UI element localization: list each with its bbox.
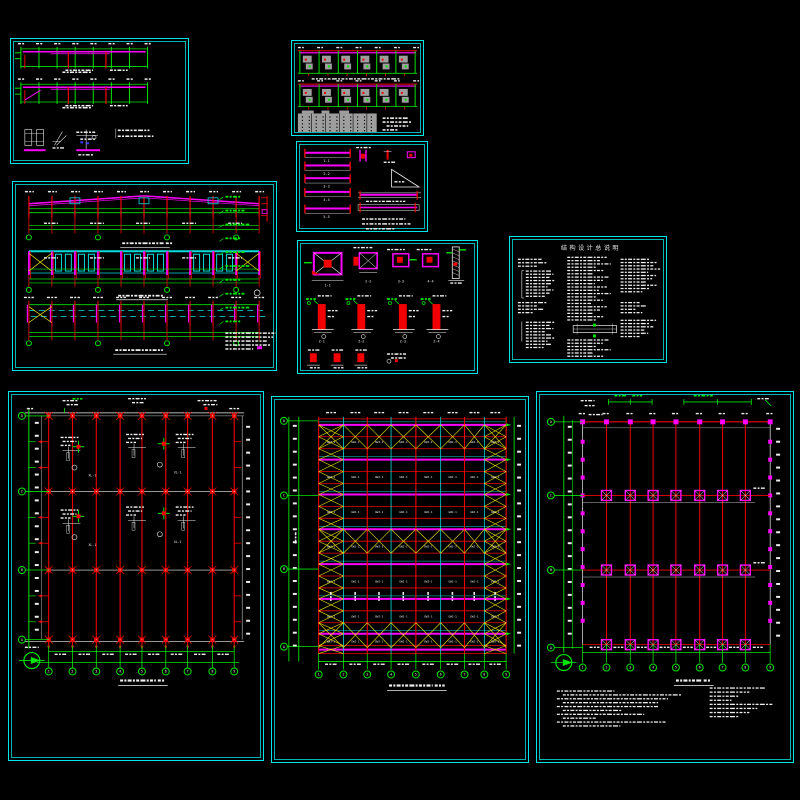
svg-text:GWJ-1: GWJ-1 bbox=[491, 440, 500, 444]
svg-text:1-1: 1-1 bbox=[323, 159, 329, 163]
svg-text:GWJ-1: GWJ-1 bbox=[470, 475, 479, 479]
svg-text:D: D bbox=[283, 419, 285, 423]
svg-text:GWJ-1: GWJ-1 bbox=[375, 614, 384, 618]
svg-text:3: 3 bbox=[629, 666, 631, 670]
svg-text:6: 6 bbox=[165, 670, 167, 674]
svg-text:GWJ-1: GWJ-1 bbox=[399, 614, 408, 618]
svg-text:4: 4 bbox=[119, 670, 121, 674]
foundation-plan-sheet[interactable]: DCBA123456789 bbox=[536, 391, 794, 763]
svg-text:D: D bbox=[550, 420, 552, 424]
svg-text:GWJ-1: GWJ-1 bbox=[448, 440, 457, 444]
column-detail-sheet[interactable]: 1-12-23-34-4Z-1Z-2Z-3Z-4 bbox=[297, 240, 478, 374]
svg-text:GWJ-1: GWJ-1 bbox=[448, 475, 457, 479]
svg-text:A: A bbox=[21, 638, 23, 642]
svg-text:GWJ-1: GWJ-1 bbox=[399, 579, 408, 583]
svg-text:2-2: 2-2 bbox=[365, 279, 371, 283]
svg-text:3-3: 3-3 bbox=[398, 279, 404, 283]
cad-drawing-canvas: 1-12-23-34-45-5 1-12-23-34-4Z-1Z-2Z-3Z-4… bbox=[0, 0, 800, 800]
svg-text:GWJ-1: GWJ-1 bbox=[491, 614, 500, 618]
svg-text:GWJ-1: GWJ-1 bbox=[375, 545, 384, 549]
svg-text:3: 3 bbox=[366, 673, 368, 677]
svg-text:GWJ-1: GWJ-1 bbox=[351, 579, 360, 583]
svg-text:GWJ-1: GWJ-1 bbox=[470, 440, 479, 444]
svg-text:B: B bbox=[550, 568, 552, 572]
svg-text:C: C bbox=[21, 490, 23, 494]
svg-text:GWJ-1: GWJ-1 bbox=[327, 614, 336, 618]
svg-text:GWJ-1: GWJ-1 bbox=[470, 640, 479, 644]
svg-text:GWJ-1: GWJ-1 bbox=[448, 579, 457, 583]
svg-text:6: 6 bbox=[699, 666, 701, 670]
svg-text:Z-3: Z-3 bbox=[400, 339, 406, 343]
svg-text:7: 7 bbox=[464, 673, 466, 677]
svg-text:GWJ-1: GWJ-1 bbox=[375, 510, 384, 514]
svg-text:9: 9 bbox=[769, 666, 771, 670]
svg-text:9: 9 bbox=[233, 670, 235, 674]
general-notes-sheet[interactable]: 结构设计总说明 bbox=[509, 236, 667, 363]
svg-text:3-3: 3-3 bbox=[323, 184, 329, 188]
svg-text:A: A bbox=[283, 645, 285, 649]
truss-elevation-sheet-drawing bbox=[13, 182, 276, 370]
svg-text:7: 7 bbox=[722, 666, 724, 670]
svg-text:GWJ-1: GWJ-1 bbox=[351, 640, 360, 644]
svg-text:GWJ-1: GWJ-1 bbox=[375, 640, 384, 644]
svg-text:GWJ-1: GWJ-1 bbox=[424, 579, 433, 583]
svg-text:GWJ-1: GWJ-1 bbox=[424, 545, 433, 549]
svg-text:2-2: 2-2 bbox=[323, 172, 329, 176]
svg-text:GWJ-1: GWJ-1 bbox=[351, 510, 360, 514]
svg-text:XL-1: XL-1 bbox=[89, 474, 97, 478]
svg-text:GWJ-1: GWJ-1 bbox=[470, 510, 479, 514]
svg-text:GWJ-1: GWJ-1 bbox=[327, 440, 336, 444]
svg-text:GWJ-1: GWJ-1 bbox=[327, 640, 336, 644]
svg-text:XL-1: XL-1 bbox=[174, 471, 182, 475]
svg-text:7: 7 bbox=[187, 670, 189, 674]
svg-text:GWJ-1: GWJ-1 bbox=[448, 640, 457, 644]
svg-text:GWJ-1: GWJ-1 bbox=[351, 475, 360, 479]
svg-text:C: C bbox=[283, 494, 285, 498]
svg-text:Z-1: Z-1 bbox=[319, 339, 325, 343]
svg-text:Z-2: Z-2 bbox=[358, 339, 364, 343]
svg-text:GWJ-1: GWJ-1 bbox=[351, 614, 360, 618]
svg-text:XL-1: XL-1 bbox=[89, 543, 97, 547]
svg-text:B: B bbox=[21, 568, 23, 572]
girt-elevation-sheet[interactable] bbox=[10, 38, 189, 164]
svg-text:GWJ-1: GWJ-1 bbox=[399, 440, 408, 444]
svg-text:5-5: 5-5 bbox=[323, 215, 329, 219]
svg-text:8: 8 bbox=[483, 673, 485, 677]
svg-text:GWJ-1: GWJ-1 bbox=[424, 440, 433, 444]
svg-text:GWJ-1: GWJ-1 bbox=[327, 510, 336, 514]
truss-elevation-sheet[interactable] bbox=[12, 181, 277, 371]
svg-text:1: 1 bbox=[318, 673, 320, 677]
svg-text:A: A bbox=[550, 646, 552, 650]
svg-text:4: 4 bbox=[390, 673, 392, 677]
svg-text:GWJ-1: GWJ-1 bbox=[327, 579, 336, 583]
svg-text:4-4: 4-4 bbox=[323, 198, 329, 202]
svg-text:GWJ-1: GWJ-1 bbox=[491, 545, 500, 549]
svg-text:2: 2 bbox=[342, 673, 344, 677]
svg-text:C: C bbox=[550, 494, 552, 498]
svg-text:GWJ-1: GWJ-1 bbox=[491, 640, 500, 644]
svg-text:4: 4 bbox=[652, 666, 654, 670]
roof-bracing-plan-sheet-drawing: GWJ-1GWJ-1GWJ-1GWJ-1GWJ-1GWJ-1GWJ-1GWJ-1… bbox=[272, 397, 528, 762]
svg-text:GWJ-1: GWJ-1 bbox=[399, 475, 408, 479]
svg-text:GWJ-1: GWJ-1 bbox=[399, 640, 408, 644]
svg-text:GWJ-1: GWJ-1 bbox=[424, 475, 433, 479]
svg-text:5: 5 bbox=[415, 673, 417, 677]
svg-text:1: 1 bbox=[582, 666, 584, 670]
roof-bracing-plan-sheet[interactable]: GWJ-1GWJ-1GWJ-1GWJ-1GWJ-1GWJ-1GWJ-1GWJ-1… bbox=[271, 396, 529, 763]
svg-text:GWJ-1: GWJ-1 bbox=[375, 579, 384, 583]
column-layout-plan-sheet[interactable]: DCBAXL-1XL-1XL-1XL-1123456789 bbox=[8, 391, 264, 761]
svg-text:GWJ-1: GWJ-1 bbox=[470, 579, 479, 583]
svg-text:GWJ-1: GWJ-1 bbox=[491, 579, 500, 583]
column-detail-sheet-drawing: 1-12-23-34-4Z-1Z-2Z-3Z-4 bbox=[298, 241, 477, 373]
svg-text:GWJ-1: GWJ-1 bbox=[327, 545, 336, 549]
svg-text:GWJ-1: GWJ-1 bbox=[448, 614, 457, 618]
svg-text:GWJ-1: GWJ-1 bbox=[399, 545, 408, 549]
svg-text:8: 8 bbox=[744, 666, 746, 670]
svg-text:9: 9 bbox=[505, 673, 507, 677]
svg-text:2: 2 bbox=[72, 670, 74, 674]
svg-text:4-4: 4-4 bbox=[427, 279, 433, 283]
svg-text:1: 1 bbox=[48, 670, 50, 674]
svg-text:5: 5 bbox=[675, 666, 677, 670]
svg-text:GWJ-1: GWJ-1 bbox=[351, 545, 360, 549]
general-notes-sheet-drawing: 结构设计总说明 bbox=[510, 237, 666, 362]
svg-text:GWJ-1: GWJ-1 bbox=[448, 545, 457, 549]
svg-text:GWJ-1: GWJ-1 bbox=[470, 545, 479, 549]
svg-text:6: 6 bbox=[440, 673, 442, 677]
beam-detail-sheet[interactable]: 1-12-23-34-45-5 bbox=[296, 141, 428, 232]
svg-text:XL-1: XL-1 bbox=[174, 540, 182, 544]
svg-text:2: 2 bbox=[606, 666, 608, 670]
svg-text:D: D bbox=[21, 414, 23, 418]
svg-text:8: 8 bbox=[211, 670, 213, 674]
north-arrow-icon bbox=[19, 653, 45, 669]
foundation-plan-sheet-drawing: DCBA123456789 bbox=[537, 392, 793, 762]
column-layout-plan-sheet-drawing: DCBAXL-1XL-1XL-1XL-1123456789 bbox=[9, 392, 263, 760]
svg-text:GWJ-1: GWJ-1 bbox=[470, 614, 479, 618]
svg-text:GWJ-1: GWJ-1 bbox=[424, 640, 433, 644]
svg-text:结构设计总说明: 结构设计总说明 bbox=[561, 244, 621, 252]
svg-text:1-1: 1-1 bbox=[325, 283, 331, 287]
svg-text:GWJ-1: GWJ-1 bbox=[375, 475, 384, 479]
girt-elevation-sheet-drawing bbox=[11, 39, 188, 163]
svg-text:GWJ-1: GWJ-1 bbox=[448, 510, 457, 514]
svg-text:GWJ-1: GWJ-1 bbox=[351, 440, 360, 444]
svg-text:GWJ-1: GWJ-1 bbox=[375, 440, 384, 444]
svg-text:GWJ-1: GWJ-1 bbox=[491, 510, 500, 514]
frame-elevation-sheet-drawing bbox=[292, 41, 423, 135]
north-arrow-icon bbox=[551, 655, 577, 671]
svg-text:GWJ-1: GWJ-1 bbox=[424, 510, 433, 514]
svg-text:GWJ-1: GWJ-1 bbox=[491, 475, 500, 479]
svg-text:B: B bbox=[283, 567, 285, 571]
svg-text:GWJ-1: GWJ-1 bbox=[327, 475, 336, 479]
svg-text:Z-4: Z-4 bbox=[433, 339, 439, 343]
svg-text:GWJ-1: GWJ-1 bbox=[399, 510, 408, 514]
svg-text:5: 5 bbox=[141, 670, 143, 674]
svg-text:3: 3 bbox=[95, 670, 97, 674]
beam-detail-sheet-drawing: 1-12-23-34-45-5 bbox=[297, 142, 427, 231]
frame-elevation-sheet[interactable] bbox=[291, 40, 424, 136]
svg-text:GWJ-1: GWJ-1 bbox=[424, 614, 433, 618]
